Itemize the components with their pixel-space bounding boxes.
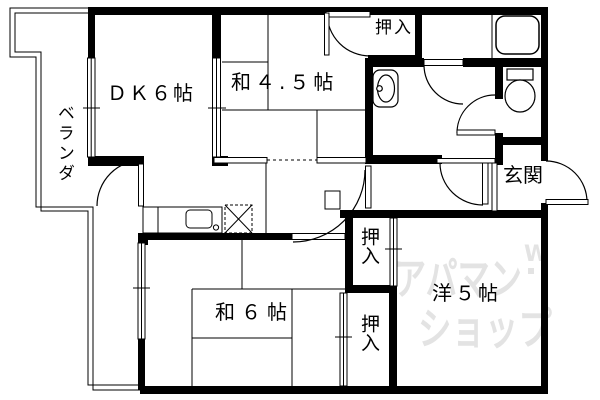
bathtub-icon [496, 16, 539, 54]
opening-hall-washitsu6 [292, 234, 345, 240]
door-leaf [546, 200, 588, 205]
partition-genkan-left [492, 163, 497, 211]
wall [88, 7, 95, 60]
wall [495, 145, 503, 165]
toilet-icon [505, 69, 535, 112]
window-dk-left [83, 58, 100, 157]
door-leaf [483, 163, 489, 204]
wall [365, 155, 442, 164]
plan-linework [0, 0, 600, 400]
wall [88, 7, 548, 15]
closet-label-top: 押入 [375, 20, 413, 38]
floor-plan: アパマン ショップ W [0, 0, 600, 400]
room-label-washitsu6: 和６帖 [215, 302, 293, 323]
wall [345, 210, 353, 293]
wall [389, 293, 397, 388]
door-stop-box [325, 191, 340, 209]
kitchen-sink-icon [143, 207, 222, 233]
wall [140, 386, 548, 394]
door-leaf [325, 13, 330, 55]
opening-hall-genkan [437, 159, 495, 164]
opening-bathroom-door [424, 60, 463, 66]
door-leaf [366, 166, 372, 208]
closet-label-bottom: 押入 [358, 314, 378, 372]
door-arc-genkan [440, 163, 483, 205]
washbasin-icon [373, 70, 398, 107]
veranda-label: ベランダ [54, 104, 72, 202]
wall [138, 338, 145, 390]
door-arc-entrance [546, 161, 587, 202]
room-label-dk: ＤＫ６帖 [107, 83, 195, 104]
washing-machine-space-icon [225, 205, 252, 233]
wall [541, 203, 548, 394]
room-label-washitsu45: 和４.５帖 [231, 72, 337, 93]
walls [88, 7, 548, 394]
opening-washitsu45-right [317, 158, 366, 164]
room-label-youshitsu5: 洋５帖 [432, 283, 501, 304]
wall [345, 285, 397, 293]
door-arc-toilet [457, 95, 495, 133]
room-label-genkan: 玄関 [503, 165, 543, 186]
opening-top-door [326, 12, 370, 18]
door-leaf [457, 130, 495, 135]
sliding-door-closet-bottom [335, 293, 352, 386]
opening-washitsu45-left [214, 158, 267, 164]
wall [365, 58, 424, 67]
door-arc-bathroom [424, 65, 463, 104]
sliding-door-dk-washitsu45 [208, 58, 226, 157]
wall [212, 7, 221, 60]
wall [495, 137, 548, 145]
door-arc-veranda [97, 160, 143, 206]
door-arc-top [327, 13, 370, 56]
door-leaf [139, 164, 144, 206]
wall [495, 67, 503, 99]
veranda-outline [10, 8, 141, 390]
wall [340, 210, 548, 218]
sliding-door-closet-middle [385, 218, 402, 286]
wall [140, 233, 292, 240]
wall [365, 58, 373, 158]
wall [463, 58, 548, 67]
window-washitsu6-left [133, 243, 150, 339]
closet-label-middle: 押入 [358, 227, 378, 285]
